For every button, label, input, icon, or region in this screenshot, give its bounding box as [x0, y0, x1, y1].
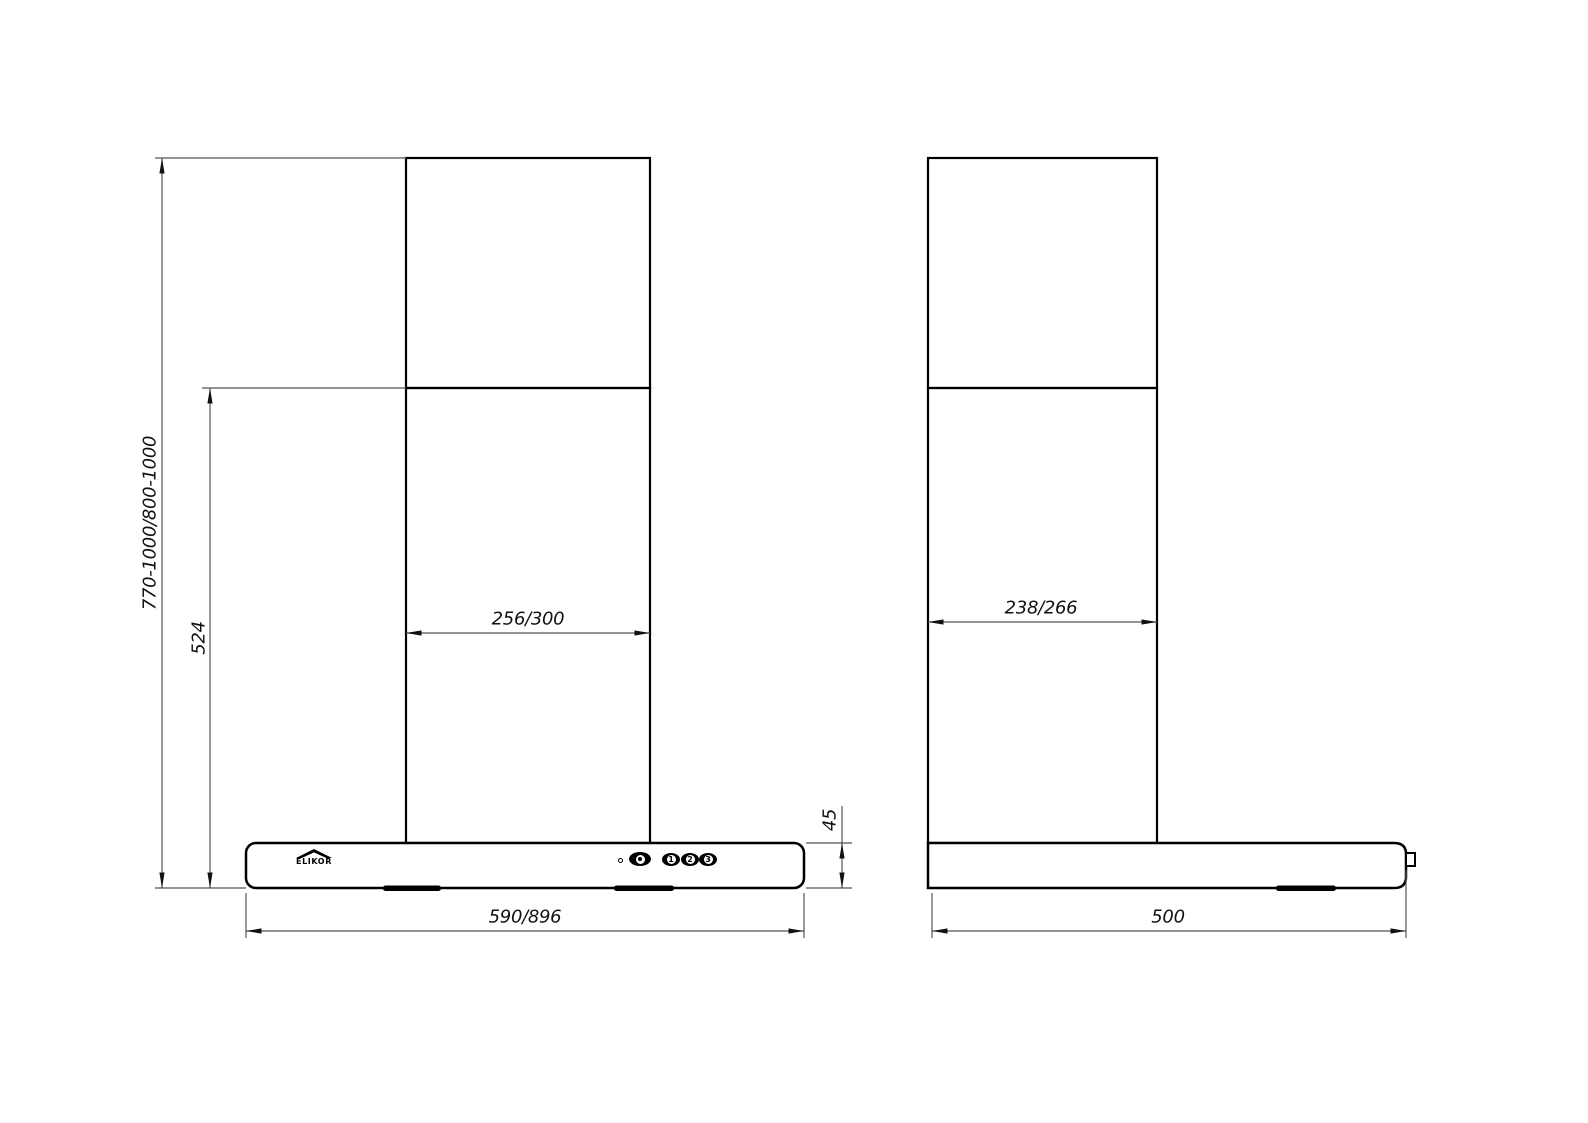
speed-button-3: 3 — [699, 853, 717, 866]
dimension-lines — [162, 158, 1406, 931]
speed-1-label: 1 — [668, 856, 674, 864]
brand-logo: ELIKOR — [291, 849, 337, 871]
side-filter-edge — [1276, 886, 1336, 892]
extension-lines — [155, 158, 1406, 938]
side-view — [928, 158, 1415, 891]
speed-2-label: 2 — [687, 856, 693, 864]
dim-label-body-depth: 500 — [1151, 907, 1184, 928]
front-filter-edge-right — [614, 886, 674, 892]
drawing-geometry — [0, 0, 1588, 1123]
dim-label-height-524: 524 — [189, 621, 210, 654]
technical-drawing-hood: 770-1000/800-1000 524 256/300 45 590/896… — [0, 0, 1588, 1123]
brand-name: ELIKOR — [296, 858, 332, 866]
front-chimney-upper — [406, 158, 650, 388]
dim-label-overall-height: 770-1000/800-1000 — [140, 436, 161, 610]
side-hood-body — [928, 843, 1406, 888]
dim-label-body-width: 590/896 — [489, 907, 562, 928]
led-indicator — [618, 858, 623, 863]
side-chimney-upper — [928, 158, 1157, 388]
speed-button-2: 2 — [681, 853, 699, 866]
bulb-icon — [636, 855, 645, 864]
speed-button-1: 1 — [662, 853, 680, 866]
front-filter-edge-left — [383, 886, 441, 892]
speed-3-label: 3 — [705, 856, 711, 864]
dim-label-duct-depth: 238/266 — [1005, 598, 1078, 619]
light-button — [629, 852, 651, 866]
side-rear-tab — [1406, 853, 1415, 866]
front-view — [246, 158, 804, 891]
dim-label-duct-width: 256/300 — [492, 609, 565, 630]
dim-label-body-height: 45 — [820, 809, 841, 831]
